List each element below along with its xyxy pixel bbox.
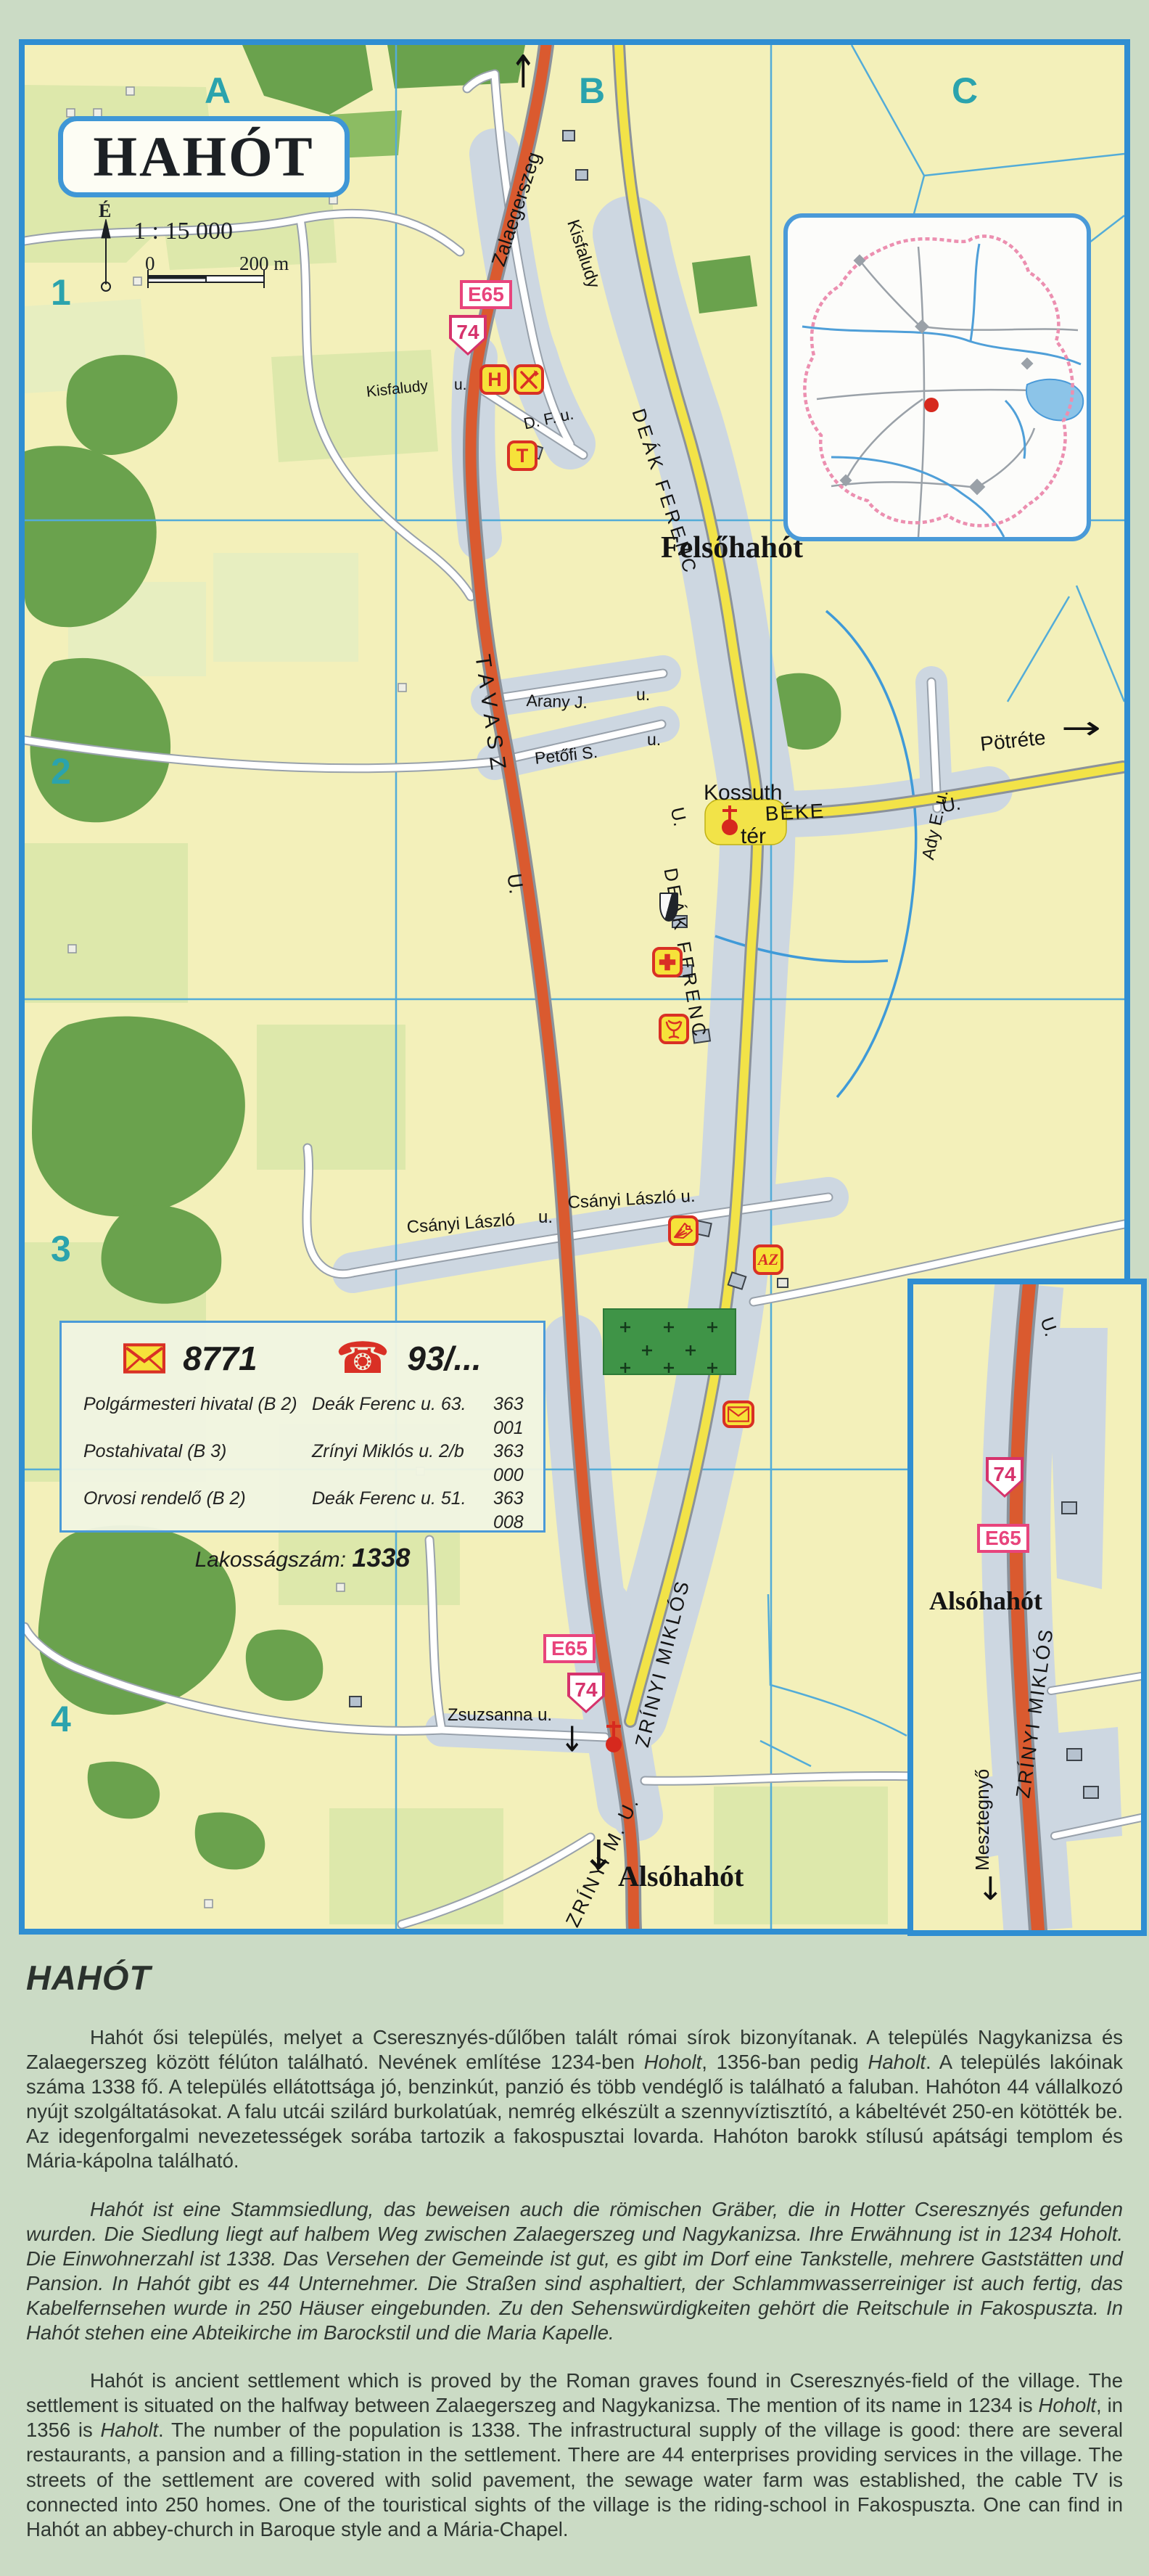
population-label: Lakosságszám:: [195, 1548, 346, 1572]
envelope-glyph: [728, 1406, 749, 1422]
ib-name: Polgármesteri hivatal (B 2): [83, 1392, 312, 1440]
directory-row: Orvosi rendelő (B 2)Deák Ferenc u. 51.36…: [83, 1487, 524, 1534]
telephone-box-icon: T: [507, 440, 538, 471]
hotel-icon: H: [479, 364, 510, 395]
street-csanyi-left-u: u.: [538, 1209, 553, 1226]
grid-col-b: B: [579, 73, 605, 109]
region-inset-graphics: [788, 218, 1087, 537]
post-office-icon: [722, 1400, 754, 1428]
paragraph-text: Hahót is ancient settlement which is pro…: [26, 2369, 1123, 2416]
grid-row-2: 2: [51, 753, 71, 789]
fork-knife-glyph: [518, 369, 540, 390]
historic-name: Haholt: [868, 2051, 926, 2073]
postal-code-envelope-icon: [123, 1342, 165, 1375]
grid-col-a: A: [205, 73, 231, 109]
ib-addr: Deák Ferenc u. 51.: [312, 1487, 493, 1534]
street-arany: Arany J.: [526, 692, 588, 711]
street-kossuth-ter: tér: [741, 826, 766, 848]
ib-phone: 363 008: [493, 1487, 524, 1534]
paragraph-text: , 1356-ban pedig: [701, 2051, 868, 2073]
inset-arrow-down-mesztegnyo: ↓: [977, 1874, 1004, 1906]
scale-ratio: 1 : 15 000: [133, 218, 233, 245]
pharmacy-icon: [659, 1014, 689, 1044]
settlement-felsohahot: Felsőhahót: [661, 533, 803, 563]
riding-school-icon: [668, 1215, 699, 1246]
phone-icon: ☎: [336, 1339, 390, 1378]
ib-phone: 363 001: [493, 1392, 524, 1440]
street-arany-u: u.: [636, 686, 650, 703]
article-paragraph-hu: Hahót ősi település, melyet a Cseresznyé…: [26, 2025, 1123, 2174]
grid-row-4: 4: [51, 1701, 71, 1737]
street-zsuzsanna: Zsuzsanna u.: [448, 1707, 552, 1724]
arrow-right-potrete: →: [1061, 713, 1101, 745]
region-inset-map[interactable]: [783, 213, 1091, 541]
historic-name: Hoholt: [1039, 2394, 1097, 2416]
population-value: 1338: [352, 1543, 410, 1572]
street-petofi-u: u.: [647, 731, 661, 748]
north-label: É: [99, 200, 111, 222]
arrow-down-alsohahot: ↓: [582, 1836, 616, 1876]
map-title-box: HAHÓT: [58, 116, 350, 197]
directory-row: Polgármesteri hivatal (B 2)Deák Ferenc u…: [83, 1392, 524, 1440]
inset-street-mesztegnyo: Mesztegnyő: [973, 1769, 992, 1871]
ib-phone: 363 000: [493, 1440, 524, 1487]
shield-e65-top: E65: [460, 280, 512, 309]
doctor-icon: [652, 947, 683, 977]
scale-zero: 0: [145, 253, 155, 275]
historic-name: Haholt: [101, 2419, 159, 2441]
open-book-glyph: [672, 1220, 694, 1242]
article-paragraph-de: Hahót ist eine Stammsiedlung, das beweis…: [26, 2197, 1123, 2346]
scale-end: 200 m: [239, 253, 289, 275]
street-tavasz-u: U.: [503, 872, 527, 895]
cemetery: [604, 1309, 736, 1374]
arrow-up-zalaegerszeg: ↑: [509, 49, 538, 94]
ib-name: Postahivatal (B 3): [83, 1440, 312, 1487]
restaurant-icon: [514, 364, 544, 395]
street-kisfaludy-u-abbr: u.: [454, 377, 467, 393]
article-paragraph-en: Hahót is ancient settlement which is pro…: [26, 2368, 1123, 2542]
arrow-down-zsuzsanna: ↓: [560, 1723, 585, 1757]
ib-addr: Zrínyi Miklós u. 2/b: [312, 1440, 493, 1487]
population-line: Lakosságszám: 1338: [62, 1543, 543, 1573]
inset-shield-e65: E65: [977, 1524, 1029, 1553]
info-box-header: 8771 ☎ 93/...: [62, 1339, 543, 1378]
inset-settlement-alsohahot: Alsóhahót: [929, 1588, 1042, 1614]
historic-name: Hoholt: [644, 2051, 702, 2073]
town-map[interactable]: A B C 1 2 3 4 HAHÓT 1 : 15 000 0 200 m É…: [19, 39, 1130, 1935]
chalice-glyph: [663, 1018, 685, 1040]
street-deak-u: U.: [668, 805, 691, 828]
article: HAHÓT Hahót ősi település, melyet a Cser…: [0, 1958, 1149, 2565]
info-box: 8771 ☎ 93/... Polgármesteri hivatal (B 2…: [59, 1321, 545, 1533]
paragraph-text: . The number of the population is 1338. …: [26, 2419, 1123, 2540]
az-sign-icon: AZ: [753, 1244, 783, 1275]
ib-addr: Deák Ferenc u. 63.: [312, 1392, 493, 1440]
phone-prefix: 93/...: [407, 1339, 481, 1378]
grid-row-3: 3: [51, 1231, 71, 1267]
postal-code: 8771: [183, 1339, 257, 1378]
settlement-alsohahot: Alsóhahót: [618, 1862, 744, 1891]
shield-e65-bottom: E65: [543, 1634, 596, 1663]
grid-col-c: C: [952, 73, 978, 109]
article-heading: HAHÓT: [26, 1958, 1123, 1998]
ib-name: Orvosi rendelő (B 2): [83, 1487, 312, 1534]
directory-row: Postahivatal (B 3)Zrínyi Miklós u. 2/b36…: [83, 1440, 524, 1487]
street-beke: BÉKE: [765, 801, 825, 824]
article-paragraphs: Hahót ősi település, melyet a Cseresznyé…: [26, 2025, 1123, 2542]
map-title: HAHÓT: [93, 124, 314, 189]
street-kossuth: Kossuth: [704, 782, 782, 804]
alsohahot-inset-map[interactable]: U. 74 E65 Alsóhahót ZRÍNYI MIKLÓS Meszte…: [907, 1279, 1147, 1936]
grid-row-1: 1: [51, 274, 71, 311]
hahot-location-dot: [924, 398, 939, 412]
red-cross-glyph: [657, 952, 678, 972]
paragraph-text: Hahót ist eine Stammsiedlung, das beweis…: [26, 2198, 1123, 2344]
directory: Polgármesteri hivatal (B 2)Deák Ferenc u…: [83, 1392, 524, 1534]
